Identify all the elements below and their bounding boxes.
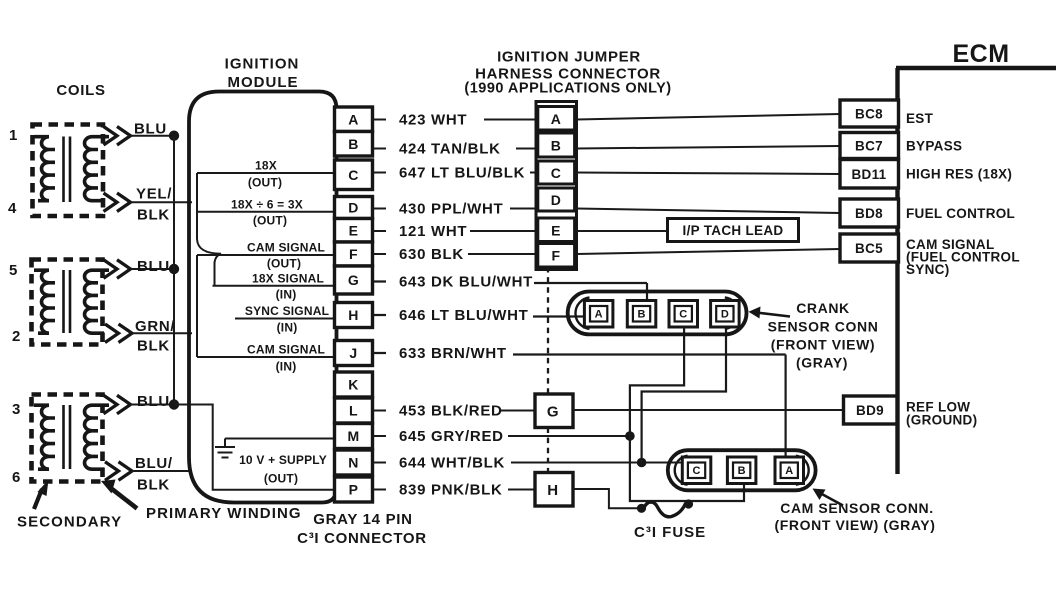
svg-text:4: 4 bbox=[8, 200, 17, 217]
svg-text:H: H bbox=[547, 482, 559, 499]
svg-text:BD9: BD9 bbox=[856, 403, 884, 418]
svg-text:P: P bbox=[349, 482, 359, 498]
svg-text:HIGH RES (18X): HIGH RES (18X) bbox=[906, 167, 1012, 182]
svg-text:BC8: BC8 bbox=[855, 107, 883, 122]
svg-text:G: G bbox=[348, 272, 359, 288]
svg-text:SENSOR CONN: SENSOR CONN bbox=[768, 319, 879, 335]
svg-text:5: 5 bbox=[9, 262, 18, 279]
svg-text:F: F bbox=[552, 248, 561, 264]
svg-text:H: H bbox=[348, 307, 359, 323]
svg-text:I/P TACH LEAD: I/P TACH LEAD bbox=[683, 223, 784, 238]
svg-text:(GRAY): (GRAY) bbox=[796, 355, 848, 371]
svg-text:3: 3 bbox=[12, 401, 21, 418]
svg-text:1: 1 bbox=[9, 127, 18, 144]
svg-text:FUEL CONTROL: FUEL CONTROL bbox=[906, 206, 1015, 221]
svg-text:10 V + SUPPLY: 10 V + SUPPLY bbox=[239, 453, 327, 467]
svg-text:C³I FUSE: C³I FUSE bbox=[634, 524, 706, 541]
svg-text:839 PNK/BLK: 839 PNK/BLK bbox=[399, 482, 503, 499]
svg-text:MODULE: MODULE bbox=[228, 74, 299, 91]
svg-text:SYNC): SYNC) bbox=[906, 262, 950, 277]
svg-text:A: A bbox=[785, 465, 793, 477]
svg-text:(IN): (IN) bbox=[277, 321, 298, 335]
svg-text:A: A bbox=[348, 111, 359, 127]
svg-text:BD11: BD11 bbox=[852, 167, 887, 182]
svg-text:D: D bbox=[721, 309, 729, 321]
svg-text:BLU/: BLU/ bbox=[135, 455, 173, 472]
svg-text:(OUT): (OUT) bbox=[253, 214, 287, 228]
svg-text:(IN): (IN) bbox=[276, 360, 297, 374]
svg-text:BLU: BLU bbox=[137, 393, 170, 410]
svg-text:(1990 APPLICATIONS ONLY): (1990 APPLICATIONS ONLY) bbox=[464, 81, 671, 97]
svg-text:A: A bbox=[595, 309, 603, 321]
svg-text:(GROUND): (GROUND) bbox=[906, 413, 977, 428]
svg-text:430 PPL/WHT: 430 PPL/WHT bbox=[399, 201, 503, 218]
svg-text:BLK: BLK bbox=[137, 338, 170, 355]
svg-text:C: C bbox=[693, 465, 701, 477]
svg-text:(IN): (IN) bbox=[276, 288, 297, 302]
svg-text:18X: 18X bbox=[255, 159, 277, 173]
svg-text:BLK: BLK bbox=[137, 207, 170, 224]
svg-text:644 WHT/BLK: 644 WHT/BLK bbox=[399, 455, 505, 472]
svg-text:CAM SIGNAL: CAM SIGNAL bbox=[247, 343, 325, 357]
svg-text:B: B bbox=[348, 136, 359, 152]
svg-text:C³I CONNECTOR: C³I CONNECTOR bbox=[297, 530, 427, 547]
svg-text:B: B bbox=[738, 465, 746, 477]
svg-text:(FRONT VIEW): (FRONT VIEW) bbox=[771, 337, 875, 353]
svg-text:630 BLK: 630 BLK bbox=[399, 246, 464, 263]
svg-text:BLK: BLK bbox=[137, 477, 170, 494]
svg-text:IGNITION: IGNITION bbox=[225, 56, 300, 73]
svg-text:ECM: ECM bbox=[952, 40, 1009, 68]
svg-text:COILS: COILS bbox=[56, 82, 105, 99]
svg-text:CRANK: CRANK bbox=[796, 300, 850, 316]
svg-text:C: C bbox=[679, 309, 687, 321]
svg-text:6: 6 bbox=[12, 469, 21, 486]
svg-text:SYNC SIGNAL: SYNC SIGNAL bbox=[245, 304, 329, 318]
svg-text:YEL/: YEL/ bbox=[136, 186, 172, 203]
svg-text:E: E bbox=[349, 222, 359, 238]
svg-text:BC5: BC5 bbox=[855, 241, 883, 256]
svg-text:GRN/: GRN/ bbox=[135, 318, 175, 335]
svg-text:B: B bbox=[638, 309, 646, 321]
svg-text:633 BRN/WHT: 633 BRN/WHT bbox=[399, 345, 507, 362]
svg-text:BLU: BLU bbox=[137, 258, 170, 275]
svg-text:EST: EST bbox=[906, 111, 934, 126]
svg-text:B: B bbox=[551, 138, 562, 154]
svg-text:121 WHT: 121 WHT bbox=[399, 223, 467, 240]
svg-text:GRAY 14 PIN: GRAY 14 PIN bbox=[313, 511, 412, 528]
svg-text:D: D bbox=[348, 200, 359, 216]
svg-text:F: F bbox=[349, 246, 358, 262]
svg-text:N: N bbox=[348, 455, 359, 471]
svg-text:424 TAN/BLK: 424 TAN/BLK bbox=[399, 141, 501, 158]
svg-text:D: D bbox=[551, 192, 562, 208]
svg-text:IGNITION JUMPER: IGNITION JUMPER bbox=[497, 49, 641, 66]
svg-text:G: G bbox=[547, 404, 559, 421]
svg-text:643 DK BLU/WHT: 643 DK BLU/WHT bbox=[399, 274, 533, 291]
svg-text:J: J bbox=[349, 345, 357, 361]
svg-text:K: K bbox=[348, 377, 359, 393]
svg-text:423 WHT: 423 WHT bbox=[399, 112, 467, 129]
svg-text:A: A bbox=[551, 111, 562, 127]
svg-text:18X SIGNAL: 18X SIGNAL bbox=[252, 272, 324, 286]
svg-text:645 GRY/RED: 645 GRY/RED bbox=[399, 428, 504, 445]
svg-text:2: 2 bbox=[12, 328, 21, 345]
svg-text:18X ÷ 6 = 3X: 18X ÷ 6 = 3X bbox=[231, 198, 303, 212]
svg-text:BYPASS: BYPASS bbox=[906, 139, 962, 154]
svg-text:BD8: BD8 bbox=[855, 206, 883, 221]
svg-text:(OUT): (OUT) bbox=[248, 176, 282, 190]
svg-text:453 BLK/RED: 453 BLK/RED bbox=[399, 403, 503, 420]
svg-text:646 LT BLU/WHT: 646 LT BLU/WHT bbox=[399, 307, 529, 324]
svg-text:BLU: BLU bbox=[134, 121, 167, 138]
svg-text:(OUT): (OUT) bbox=[267, 257, 301, 271]
svg-text:SECONDARY: SECONDARY bbox=[17, 514, 122, 531]
svg-text:PRIMARY WINDING: PRIMARY WINDING bbox=[146, 505, 302, 522]
svg-text:(FRONT VIEW) (GRAY): (FRONT VIEW) (GRAY) bbox=[775, 517, 936, 533]
svg-text:M: M bbox=[347, 428, 359, 444]
svg-text:CAM SIGNAL: CAM SIGNAL bbox=[247, 241, 325, 255]
svg-text:CAM SENSOR CONN.: CAM SENSOR CONN. bbox=[780, 500, 934, 516]
svg-text:647 LT BLU/BLK: 647 LT BLU/BLK bbox=[399, 165, 525, 182]
svg-text:C: C bbox=[348, 167, 359, 183]
svg-text:BC7: BC7 bbox=[855, 139, 883, 154]
svg-text:L: L bbox=[349, 403, 358, 419]
svg-text:E: E bbox=[551, 222, 561, 238]
svg-text:(OUT): (OUT) bbox=[264, 472, 298, 486]
svg-text:C: C bbox=[551, 165, 562, 181]
